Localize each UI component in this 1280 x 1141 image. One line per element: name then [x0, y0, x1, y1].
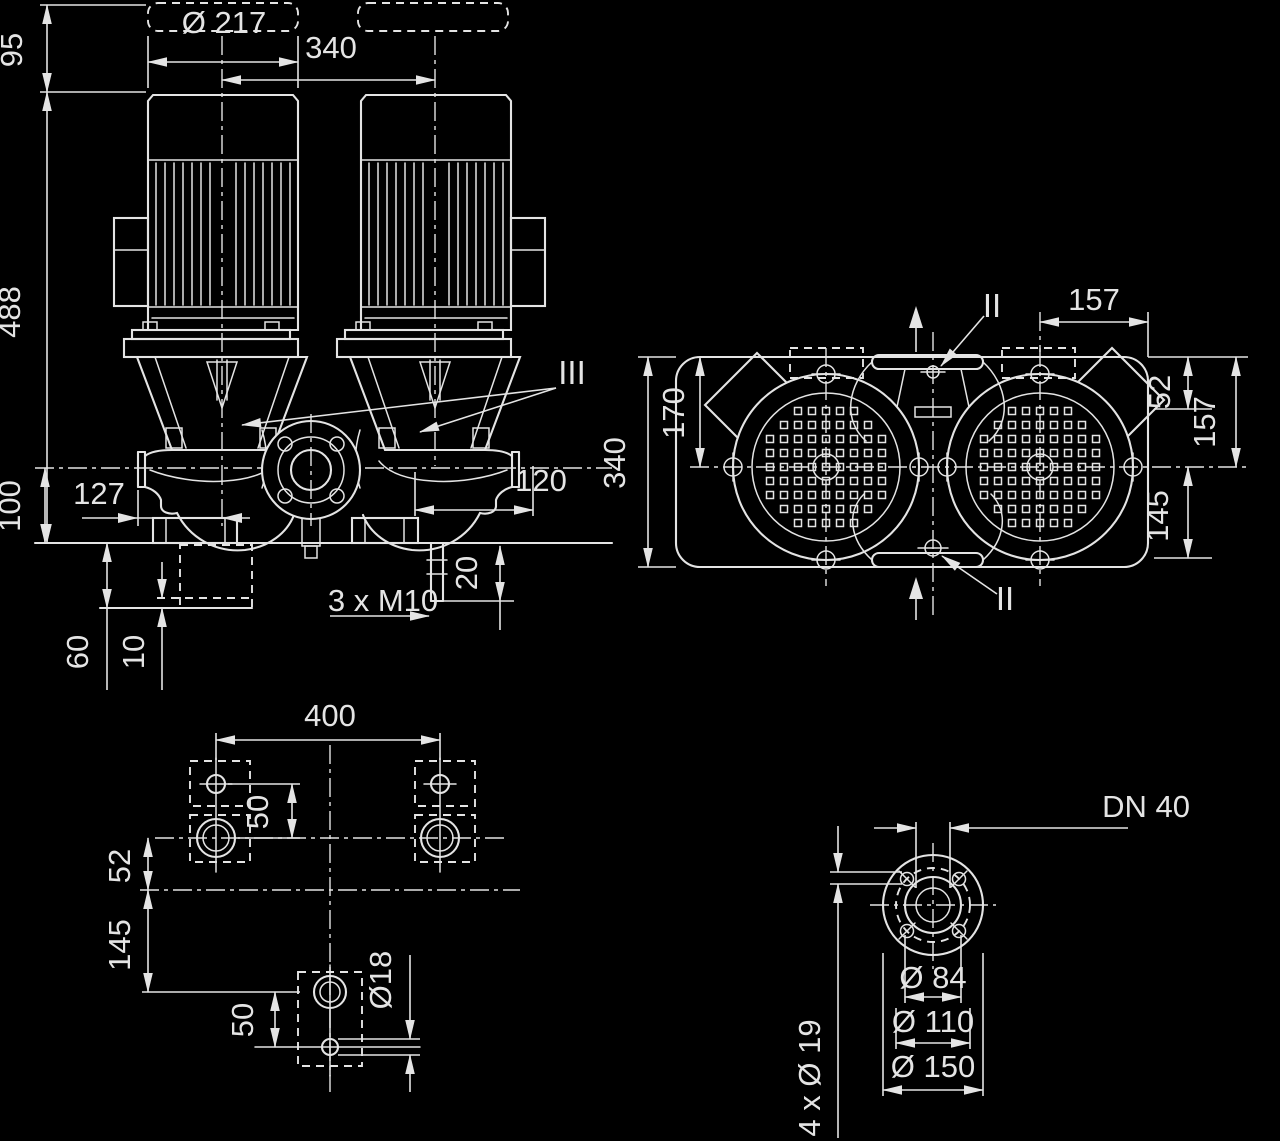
- flange-dimensions: [830, 822, 1128, 1138]
- motor-2-side-box: [511, 218, 545, 306]
- foundation-plan-view: [140, 733, 520, 1092]
- dim-label-sec-II-b: II: [996, 580, 1014, 617]
- dim-label-dia110: Ø 110: [892, 1004, 974, 1039]
- dim-label-dn40: DN 40: [1102, 789, 1190, 824]
- dim-label-d-20: 20: [449, 556, 484, 590]
- foundation-dimensions: [142, 733, 440, 1092]
- dim-label-d-60: 60: [60, 635, 95, 669]
- dim-label-h-95: 95: [0, 33, 29, 67]
- dim-label-sec-III: III: [558, 354, 586, 391]
- dim-label-w-127: 127: [73, 476, 125, 511]
- dim-label-f-145: 145: [102, 919, 137, 971]
- dim-label-dia150: Ø 150: [891, 1049, 975, 1084]
- dim-label-f-52: 52: [102, 849, 137, 883]
- terminal-box-hidden-right: [358, 3, 508, 31]
- motor-1-fins: [156, 163, 290, 305]
- dim-label-t-157-r: 157: [1187, 396, 1222, 448]
- dim-label-w-120: 120: [515, 463, 567, 498]
- pump-dimensional-drawing: Ø 217340954881001271203 x M10206010IIIII…: [0, 0, 1280, 1141]
- dim-label-f-50-top: 50: [240, 795, 275, 829]
- dim-label-sec-II-t: II: [983, 287, 1001, 324]
- flow-arrow-bottom: [909, 577, 923, 599]
- dim-label-h-488: 488: [0, 286, 27, 338]
- dim-label-bolt19: 4 x Ø 19: [792, 1019, 827, 1136]
- dim-label-t-145: 145: [1140, 490, 1175, 542]
- dim-label-t-340: 340: [597, 437, 632, 489]
- motor-1: [114, 36, 298, 466]
- dimensional-drawing-canvas: Ø 217340954881001271203 x M10206010IIIII…: [0, 0, 1280, 1141]
- dim-label-t-157-top: 157: [1068, 282, 1120, 317]
- flow-arrow-top: [909, 306, 923, 328]
- motor-2-fins: [369, 163, 503, 305]
- dim-label-f-50-bot: 50: [225, 1003, 260, 1037]
- motor-1-side-box: [114, 218, 148, 306]
- dim-label-dia84: Ø 84: [899, 960, 966, 995]
- dim-label-thread: 3 x M10: [328, 583, 438, 618]
- section-II-leader-bottom: [942, 556, 997, 594]
- front-view: [35, 3, 612, 690]
- pump-foot-2: [352, 518, 418, 543]
- dim-label-f-400: 400: [304, 698, 356, 733]
- dim-label-d-10: 10: [116, 635, 151, 669]
- drain-plug: [305, 546, 317, 558]
- section-II-leader-top: [941, 316, 984, 366]
- dim-label-t-52: 52: [1142, 375, 1177, 409]
- top-view: [638, 306, 1248, 620]
- port-bottom: [872, 553, 983, 567]
- dim-label-f-dia18: Ø18: [363, 951, 398, 1010]
- dim-label-t-170: 170: [656, 387, 691, 439]
- bolt-group-top-right: [415, 758, 475, 872]
- dim-label-len-340-top: 340: [305, 30, 357, 65]
- dim-label-dia-217: Ø 217: [182, 5, 266, 40]
- flange-detail-view: [830, 822, 1128, 1138]
- dim-label-h-100: 100: [0, 480, 27, 532]
